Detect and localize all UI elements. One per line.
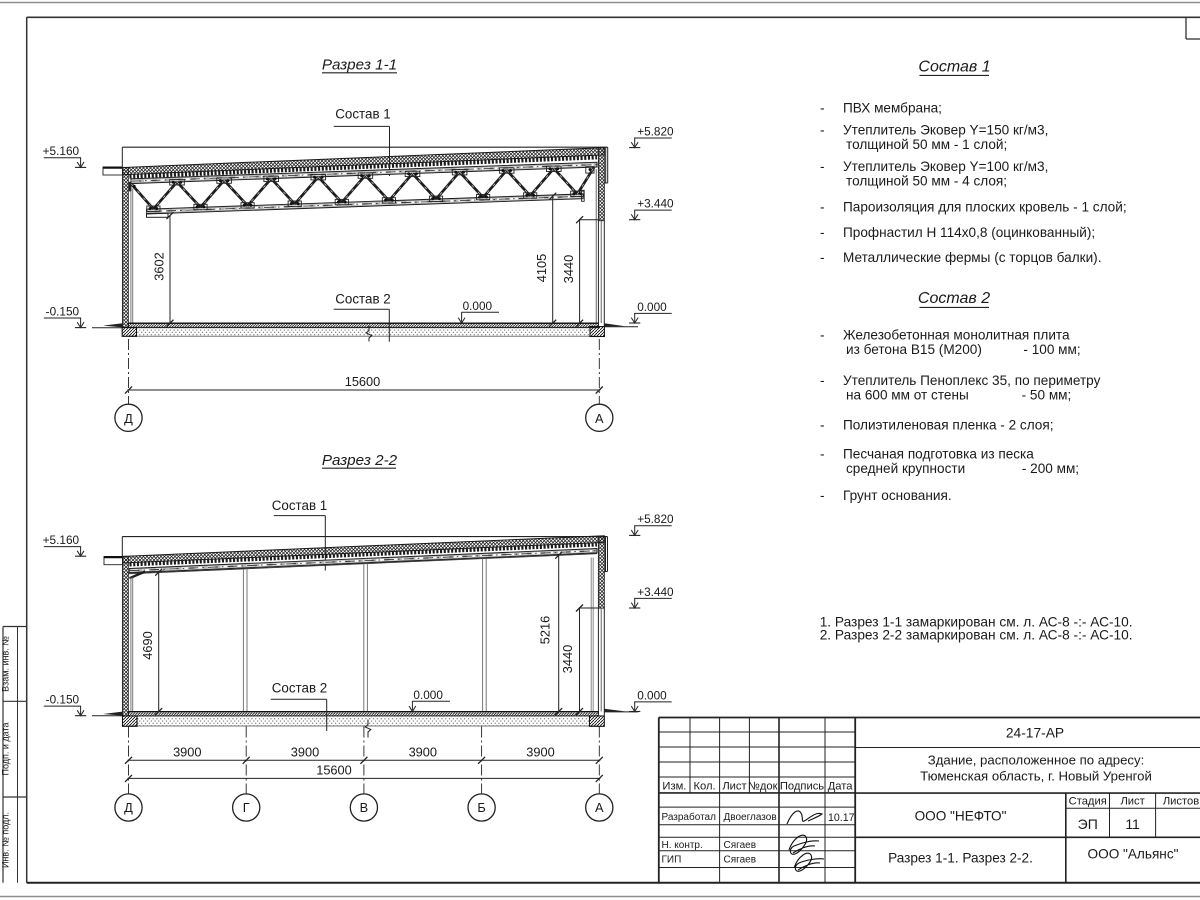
svg-text:на 600 мм от стены: на 600 мм от стены - 50 мм; xyxy=(846,388,1071,403)
svg-text:Состав 1: Состав 1 xyxy=(335,107,391,122)
svg-text:+5.820: +5.820 xyxy=(637,124,674,138)
svg-text:+5.160: +5.160 xyxy=(43,144,80,158)
svg-text:3440: 3440 xyxy=(560,645,575,673)
svg-text:Инв. № подл.: Инв. № подл. xyxy=(1,812,11,868)
svg-text:Сягаев: Сягаев xyxy=(724,854,757,865)
svg-text:Утеплитель Эковер Y=150 кг/м3,: Утеплитель Эковер Y=150 кг/м3, xyxy=(843,123,1048,138)
svg-text:-0.150: -0.150 xyxy=(46,693,80,707)
svg-text:Лист: Лист xyxy=(722,780,746,792)
svg-text:Сягаев: Сягаев xyxy=(724,840,757,851)
svg-text:+5.160: +5.160 xyxy=(43,533,80,547)
svg-text:Подп. и дата: Подп. и дата xyxy=(1,722,11,775)
svg-text:0.000: 0.000 xyxy=(637,688,667,702)
svg-text:-: - xyxy=(820,373,825,388)
svg-text:Профнастил Н 114х0,8 (оцинкова: Профнастил Н 114х0,8 (оцинкованный); xyxy=(843,225,1095,240)
svg-text:Листов: Листов xyxy=(1163,796,1199,808)
svg-text:Д: Д xyxy=(124,411,133,426)
svg-text:Н. контр.: Н. контр. xyxy=(662,840,703,851)
svg-text:Утеплитель Пеноплекс 35, по пе: Утеплитель Пеноплекс 35, по периметру xyxy=(843,373,1101,388)
svg-text:3602: 3602 xyxy=(152,252,167,280)
svg-text:0.000: 0.000 xyxy=(463,299,493,313)
svg-text:3900: 3900 xyxy=(173,745,201,760)
svg-text:5216: 5216 xyxy=(538,616,553,644)
svg-text:Металлические фермы (с торцов: Металлические фермы (с торцов балки). xyxy=(843,250,1102,265)
svg-text:+3.440: +3.440 xyxy=(637,585,674,599)
svg-text:Состав 2: Состав 2 xyxy=(272,681,328,696)
svg-text:-: - xyxy=(820,488,825,503)
svg-text:3440: 3440 xyxy=(561,255,576,283)
svg-text:Стадия: Стадия xyxy=(1069,796,1107,808)
svg-text:Песчаная подготовка из песка: Песчаная подготовка из песка xyxy=(843,447,1034,462)
svg-text:24-17-АР: 24-17-АР xyxy=(1006,725,1064,740)
svg-text:-: - xyxy=(820,101,825,116)
svg-text:-: - xyxy=(820,250,825,265)
svg-text:-: - xyxy=(820,200,825,215)
svg-text:-: - xyxy=(820,159,825,174)
svg-text:Разработал: Разработал xyxy=(662,811,717,823)
svg-text:Изм.: Изм. xyxy=(662,780,686,792)
svg-text:Полиэтиленовая пленка - 2 слоя: Полиэтиленовая пленка - 2 слоя; xyxy=(843,418,1054,433)
svg-text:Состав 2: Состав 2 xyxy=(918,290,990,307)
svg-text:0.000: 0.000 xyxy=(413,688,443,702)
svg-text:11: 11 xyxy=(1125,816,1140,832)
svg-text:4105: 4105 xyxy=(534,254,549,282)
svg-text:+3.440: +3.440 xyxy=(637,197,674,211)
svg-text:Г: Г xyxy=(243,800,250,815)
svg-text:0.000: 0.000 xyxy=(637,300,667,314)
svg-text:толщиной 50 мм - 4 слоя;: толщиной 50 мм - 4 слоя; xyxy=(846,174,1007,189)
svg-text:3900: 3900 xyxy=(409,745,437,760)
svg-text:Пароизоляция для плоских крове: Пароизоляция для плоских кровель - 1 сло… xyxy=(843,200,1127,215)
svg-text:-0.150: -0.150 xyxy=(46,304,80,318)
svg-text:-: - xyxy=(820,418,825,433)
svg-text:Д: Д xyxy=(124,800,133,815)
svg-text:средней крупности: средней крупности - 200 мм; xyxy=(846,461,1079,476)
svg-text:Состав 1: Состав 1 xyxy=(918,58,990,75)
svg-text:Кол.: Кол. xyxy=(694,780,716,792)
svg-text:Подпись: Подпись xyxy=(780,780,824,792)
svg-text:Взам. инв. №: Взам. инв. № xyxy=(1,636,11,692)
svg-text:Разрез 1-1: Разрез 1-1 xyxy=(322,57,397,74)
svg-text:10.17: 10.17 xyxy=(828,812,855,824)
svg-text:№док.: №док. xyxy=(748,780,781,792)
svg-text:Лист: Лист xyxy=(1120,796,1144,808)
svg-text:+5.820: +5.820 xyxy=(637,512,674,526)
svg-text:15600: 15600 xyxy=(316,763,352,778)
svg-text:Разрез 1-1. Разрез 2-2.: Разрез 1-1. Разрез 2-2. xyxy=(888,851,1033,866)
svg-text:Б: Б xyxy=(477,800,485,815)
svg-text:Утеплитель Эковер Y=100 кг/м3,: Утеплитель Эковер Y=100 кг/м3, xyxy=(843,159,1048,174)
svg-text:Состав 2: Состав 2 xyxy=(335,292,391,307)
svg-text:3900: 3900 xyxy=(526,745,554,760)
svg-text:Разрез 2-2: Разрез 2-2 xyxy=(322,452,398,469)
svg-text:3900: 3900 xyxy=(291,745,319,760)
svg-text:ООО "НЕФТО": ООО "НЕФТО" xyxy=(915,808,1007,823)
svg-text:Тюменская область, г. Новый Ур: Тюменская область, г. Новый Уренгой xyxy=(920,769,1152,784)
svg-text:А: А xyxy=(595,411,604,426)
svg-text:Грунт основания.: Грунт основания. xyxy=(843,488,952,503)
svg-text:15600: 15600 xyxy=(345,374,381,389)
svg-text:-: - xyxy=(820,447,825,462)
svg-text:ООО "Альянс": ООО "Альянс" xyxy=(1088,847,1179,862)
svg-text:толщиной 50 мм - 1 слой;: толщиной 50 мм - 1 слой; xyxy=(846,137,1007,152)
svg-text:Железобетонная монолитная пли: Железобетонная монолитная плита xyxy=(843,328,1070,343)
svg-text:ЭП: ЭП xyxy=(1078,816,1098,832)
svg-text:ГИП: ГИП xyxy=(662,854,682,865)
svg-text:Состав 1: Состав 1 xyxy=(272,498,328,513)
svg-text:А: А xyxy=(595,800,604,815)
svg-text:2. Разрез 2-2 замаркирован см.: 2. Разрез 2-2 замаркирован см. л. АС-8 -… xyxy=(820,627,1133,642)
svg-text:Дата: Дата xyxy=(828,780,854,792)
svg-text:Двоеглазов: Двоеглазов xyxy=(724,812,777,823)
svg-text:Здание, расположенное по адрес: Здание, расположенное по адресу: xyxy=(928,752,1145,767)
svg-text:ПВХ мембрана;: ПВХ мембрана; xyxy=(843,101,942,116)
svg-text:В: В xyxy=(360,800,369,815)
svg-text:4690: 4690 xyxy=(140,631,155,659)
svg-text:-: - xyxy=(820,225,825,240)
svg-text:-: - xyxy=(820,123,825,138)
svg-text:из бетона В15 (М200): из бетона В15 (М200) - 100 мм; xyxy=(846,342,1081,357)
svg-text:-: - xyxy=(820,328,825,343)
